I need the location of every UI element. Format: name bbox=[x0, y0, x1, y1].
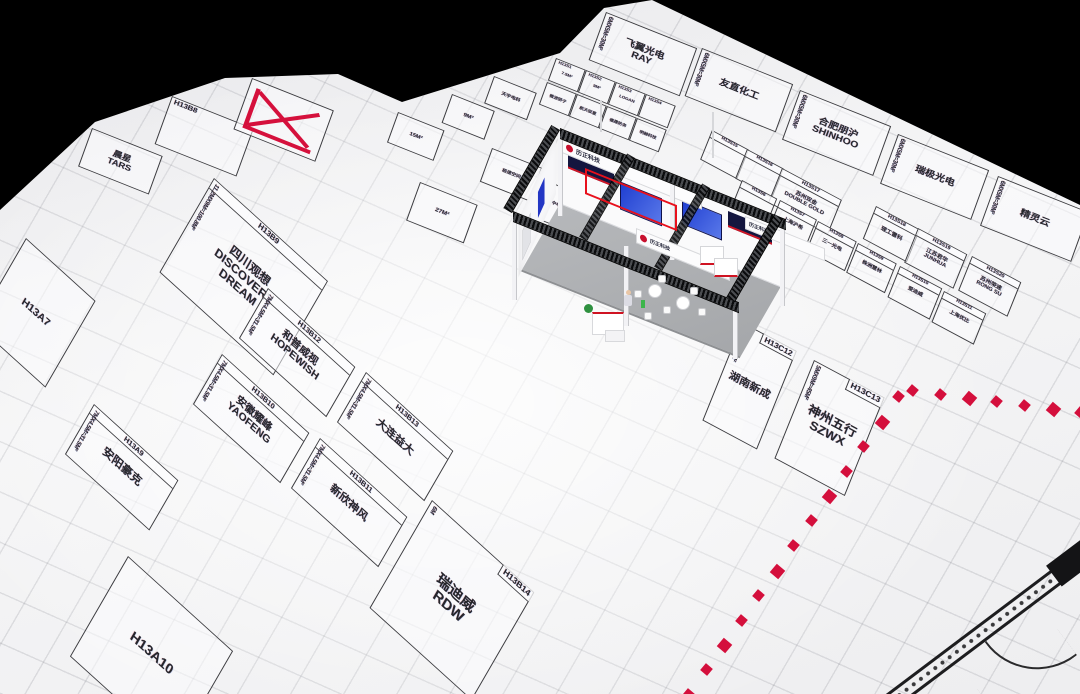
booth-column bbox=[780, 220, 785, 306]
plant bbox=[584, 304, 593, 313]
booth-label: 德晟防务 bbox=[609, 118, 627, 129]
booth-H13A9[interactable]: H13A9安阳豪克7MX4.5M=31.5M² bbox=[65, 404, 178, 531]
booth-id: H13C13 bbox=[845, 379, 884, 408]
exhibition-floorplan-3d-view: { "scene": { "background": "#000000", "f… bbox=[0, 0, 1080, 694]
brand-logo-icon bbox=[640, 234, 647, 244]
booth-label: 飞翼光电RAY bbox=[620, 37, 666, 71]
booth-label: 瑞迪威RDW bbox=[426, 571, 477, 629]
booth-id: H13S4 bbox=[648, 97, 662, 106]
booth-label: 明赫科技 bbox=[639, 130, 657, 141]
booth-label: 合肥朋沪SHINHOO bbox=[810, 115, 862, 151]
booth-dimension: 6M bbox=[428, 504, 437, 515]
booth-label: 航天驭星 bbox=[579, 106, 597, 117]
booth-H13A10[interactable]: H13A10 bbox=[70, 556, 233, 694]
booth-dimension: 7MX4.5M=31.5M² bbox=[200, 358, 228, 402]
booth-label: 15M² bbox=[408, 131, 423, 141]
booth-label: 爱迪威 bbox=[907, 287, 923, 300]
booth-id: H13S1 bbox=[558, 61, 572, 70]
booth-id: H13S2 bbox=[588, 73, 602, 82]
booth-dimension: 6MX5M=30M² bbox=[887, 137, 905, 172]
antenna-pole bbox=[712, 112, 714, 158]
booth-id: H13B8 bbox=[173, 99, 199, 115]
booth-label: H13A7 bbox=[20, 296, 52, 329]
booth-id: H13S18 bbox=[874, 207, 919, 236]
booth-dimension: 11.2MX9M=100.8M² bbox=[189, 182, 220, 231]
booth-label: 湖南新成 bbox=[727, 370, 772, 402]
booth-label: 9M² bbox=[462, 112, 473, 121]
booth-dimension: 6MX5M=30M² bbox=[789, 93, 807, 128]
booth-id: H13B14 bbox=[497, 564, 534, 602]
booth-youzhi[interactable]: 友直化工6MX5M=30M² bbox=[685, 48, 794, 132]
round-table bbox=[676, 296, 690, 310]
booth-dimension: 7MX4.5M=31.5M² bbox=[298, 442, 326, 486]
booth-jingling[interactable]: 精灵云6MX5M=30M² bbox=[980, 176, 1080, 262]
poster-screen bbox=[538, 177, 545, 218]
booth-tars[interactable]: 晨星TARS bbox=[78, 128, 163, 195]
booth-cells-layer: 晨星TARSH13B8飞翼光电RAY6MX5M=30M²友直化工6MX5M=30… bbox=[0, 0, 1080, 694]
booth-H13A7[interactable]: H13A7 bbox=[0, 238, 96, 388]
booth-dimension: 6MX5M=30M² bbox=[987, 179, 1005, 214]
antenna-pole bbox=[600, 100, 602, 132]
booth-label: 微波骄子 bbox=[549, 94, 567, 105]
chair bbox=[663, 306, 671, 314]
chair bbox=[698, 308, 706, 316]
booth-label: 晨星TARS bbox=[106, 148, 135, 174]
chair bbox=[644, 312, 652, 320]
booth-id: H13C12 bbox=[759, 333, 797, 361]
booth-dimension: 6MX5M=30M² bbox=[595, 15, 613, 50]
booth-label: 9M² bbox=[593, 84, 602, 91]
booth-id: H13S15 bbox=[710, 131, 748, 156]
booth-ruiji[interactable]: 瑞极光电6MX5M=30M² bbox=[880, 134, 989, 220]
booth-f4[interactable]: 27M² bbox=[406, 182, 478, 243]
booth-H13C13[interactable]: H13C13神州五行SZWX5MX9M=45M² bbox=[774, 360, 884, 496]
person-figure bbox=[624, 295, 632, 306]
booth-label: 神州五行SZWX bbox=[801, 403, 858, 452]
booth-label: 27M² bbox=[434, 207, 450, 218]
booth-label: 极速空间 bbox=[501, 169, 521, 181]
booth-label: 精灵云 bbox=[1018, 209, 1051, 230]
round-table bbox=[648, 284, 662, 298]
booth-label: 天宇电科 bbox=[500, 92, 520, 104]
booth-column bbox=[558, 132, 563, 216]
booth-column bbox=[512, 214, 517, 300]
booth-dimension: 7MX4.5M=31.5M² bbox=[72, 408, 100, 452]
chair bbox=[690, 287, 698, 295]
booth-label: LOGAN bbox=[619, 94, 636, 104]
booth-H13B8[interactable]: H13B8 bbox=[155, 96, 254, 177]
booth-shinhoo[interactable]: 合肥朋沪SHINHOO6MX5M=30M² bbox=[782, 90, 891, 176]
chair bbox=[658, 275, 666, 283]
booth-dimension: 7MX4.5M=31.5M² bbox=[344, 376, 372, 420]
booth-label: 友直化工 bbox=[718, 78, 760, 103]
booth-label: 7.5M² bbox=[561, 71, 573, 79]
booth-dimension: 5MX9M=45M² bbox=[801, 363, 820, 400]
brand-logo-icon bbox=[566, 144, 573, 154]
booth-label: 和普威视HOPEWISH bbox=[269, 322, 326, 383]
booth-label: H13A10 bbox=[128, 629, 176, 678]
display-cube bbox=[714, 258, 738, 277]
booth-label: 瑞极光电 bbox=[913, 165, 955, 190]
booth-id: H13S16 bbox=[745, 150, 783, 175]
green-bottle bbox=[641, 300, 645, 308]
booth-label: 上海优比 bbox=[948, 310, 969, 325]
counter-side bbox=[605, 330, 625, 342]
booth-f1[interactable]: 15M² bbox=[387, 112, 445, 161]
chair bbox=[634, 290, 642, 298]
